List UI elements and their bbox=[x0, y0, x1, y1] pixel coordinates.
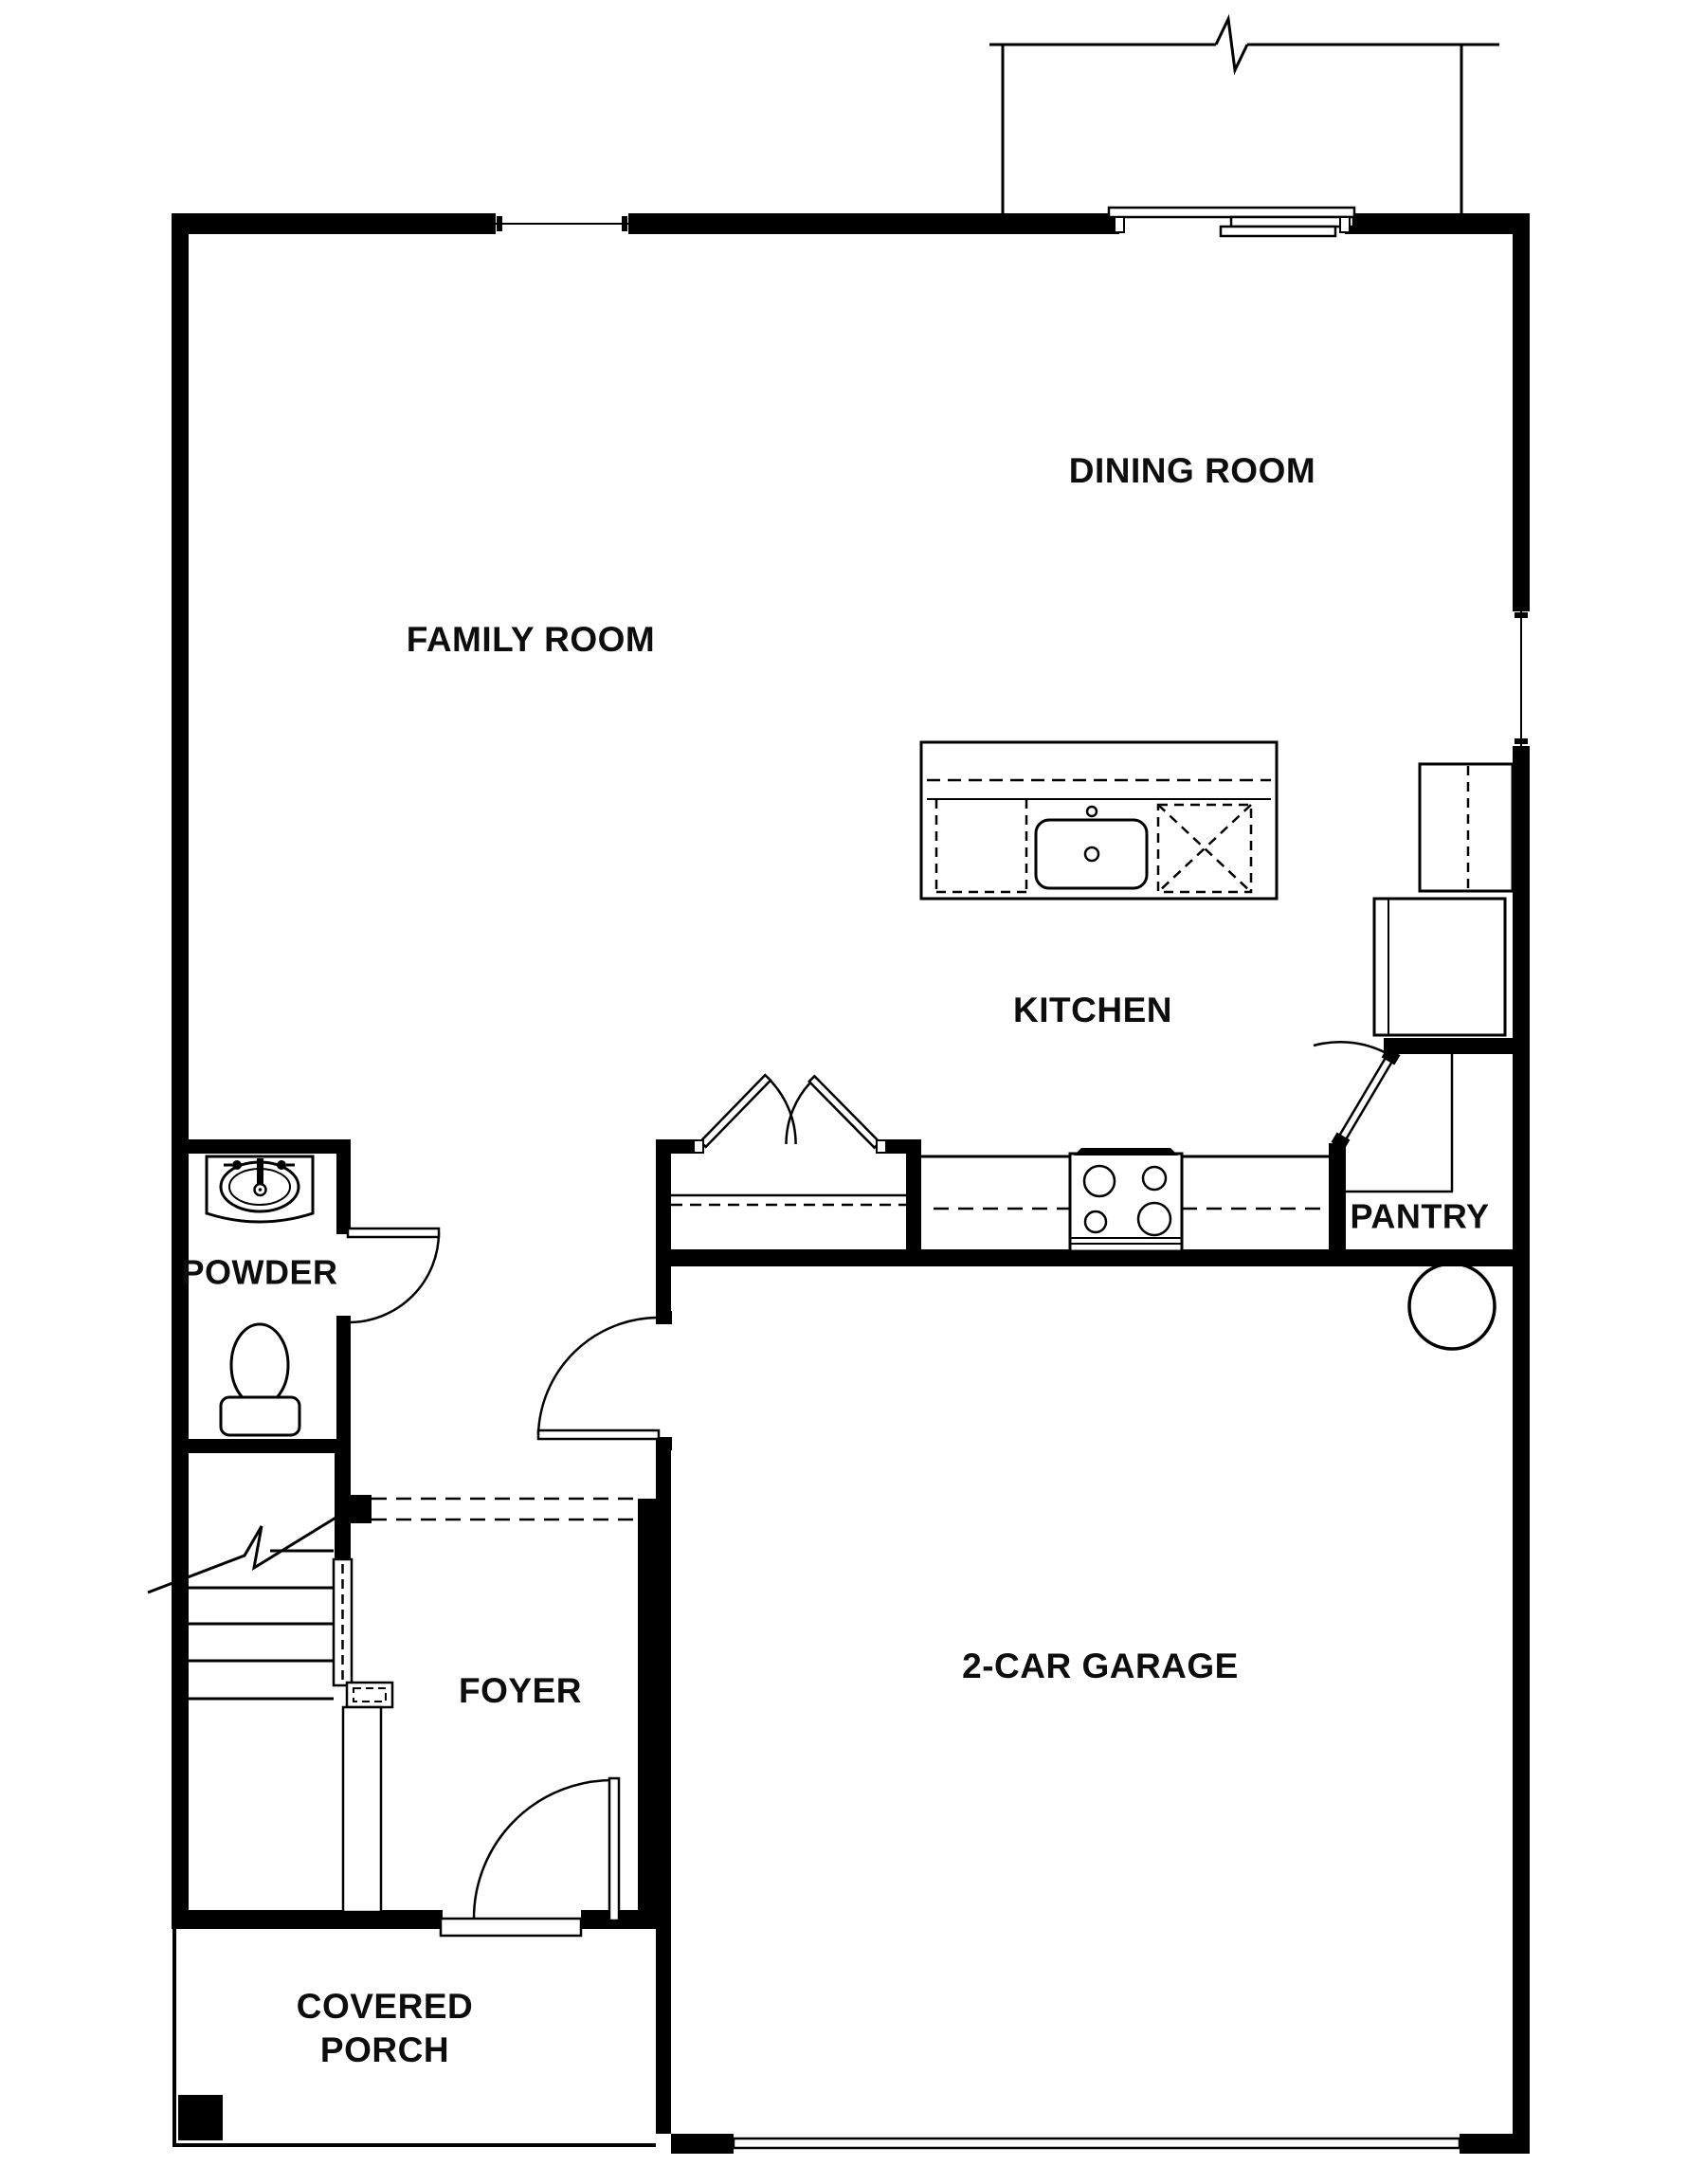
room-label-powder: POWDER bbox=[182, 1251, 338, 1294]
toilet-icon bbox=[221, 1324, 299, 1435]
room-label-family-room: FAMILY ROOM bbox=[407, 618, 655, 662]
room-label-garage: 2-CAR GARAGE bbox=[962, 1645, 1239, 1688]
closet-walls bbox=[656, 1139, 921, 1266]
closet-double-doors bbox=[694, 1075, 886, 1153]
wall-cabinet bbox=[1420, 764, 1513, 891]
garage-west-wall bbox=[638, 1139, 672, 2134]
vanity-sink-icon bbox=[207, 1156, 313, 1222]
room-label-kitchen: KITCHEN bbox=[1013, 989, 1172, 1032]
family-room-window bbox=[496, 213, 628, 234]
pantry-shelves bbox=[1346, 1054, 1453, 1192]
dining-room-window bbox=[1513, 611, 1530, 746]
front-door-sill bbox=[441, 1919, 581, 1936]
floor-plan-drawing bbox=[0, 0, 1687, 2184]
garage-door bbox=[734, 2138, 1460, 2148]
pantry-door bbox=[1314, 1042, 1400, 1150]
covered-porch-line2: PORCH bbox=[297, 2029, 473, 2072]
room-label-pantry: PANTRY bbox=[1351, 1195, 1490, 1238]
island-sink-icon bbox=[1036, 807, 1147, 888]
break-line-icon bbox=[1216, 19, 1247, 70]
sliding-door bbox=[1109, 208, 1354, 236]
closet-shelf bbox=[671, 1195, 906, 1205]
refrigerator-icon bbox=[1374, 899, 1505, 1035]
powder-door bbox=[348, 1228, 439, 1322]
covered-porch-line1: COVERED bbox=[297, 1985, 473, 2029]
room-label-foyer: FOYER bbox=[459, 1669, 582, 1713]
water-heater-icon bbox=[1409, 1264, 1495, 1349]
foyer-half-wall bbox=[343, 1707, 381, 1912]
floor-plan: FAMILY ROOM DINING ROOM KITCHEN PANTRY P… bbox=[0, 0, 1687, 2184]
range-icon bbox=[1070, 1148, 1182, 1251]
opening-dashed bbox=[351, 1495, 638, 1523]
patio-outline bbox=[989, 19, 1499, 214]
stair-railing bbox=[334, 1559, 392, 1912]
foyer-garage-door bbox=[538, 1318, 659, 1439]
porch-post bbox=[178, 2095, 223, 2140]
room-label-covered-porch: COVERED PORCH bbox=[297, 1985, 473, 2073]
room-label-dining-room: DINING ROOM bbox=[1069, 449, 1315, 493]
